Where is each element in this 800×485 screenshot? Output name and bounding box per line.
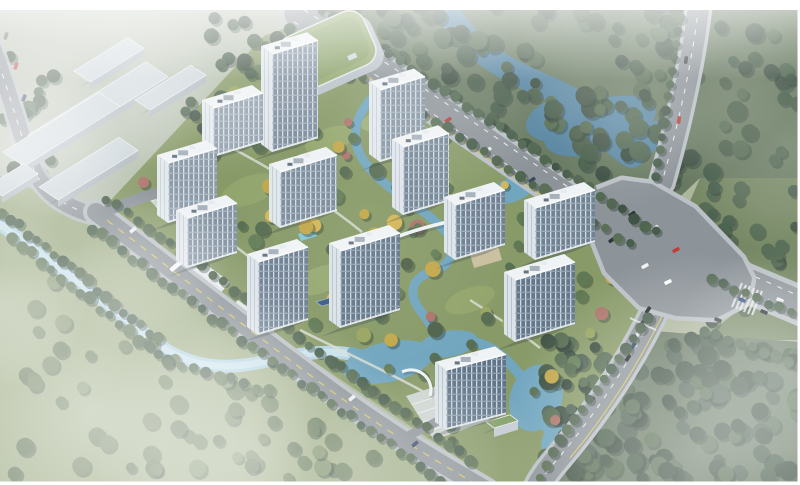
fog-patch xyxy=(50,170,230,350)
aerial-site-rendering-canvas xyxy=(0,0,800,485)
fog-patch xyxy=(220,90,520,390)
white-margin-bottom xyxy=(0,482,800,485)
distance-haze-top xyxy=(0,10,800,80)
architectural-aerial-rendering xyxy=(0,0,800,485)
white-margin-top xyxy=(0,0,800,10)
